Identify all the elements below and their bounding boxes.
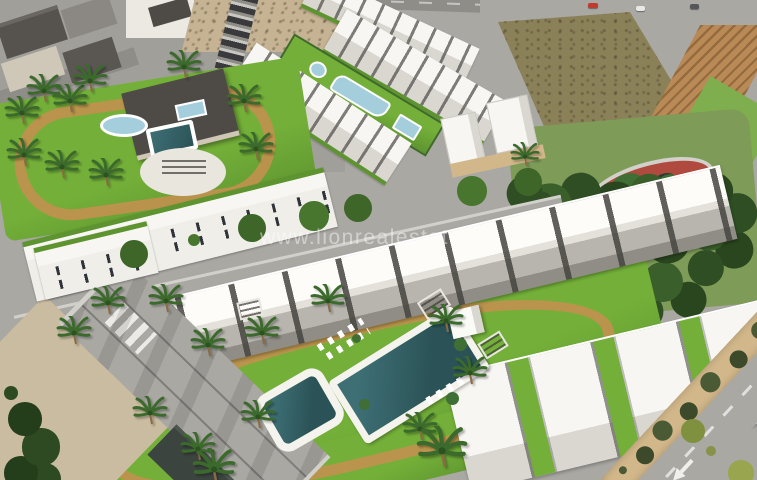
palm-tree [88, 158, 124, 188]
pergola [160, 154, 208, 176]
corner-shrubs [4, 386, 18, 400]
white-car [636, 6, 645, 11]
palm-tree [148, 284, 184, 314]
palm-tree [244, 316, 280, 346]
palm-tree [416, 426, 468, 470]
poolside-plants [352, 334, 361, 343]
palm-tree [90, 286, 126, 316]
palm-tree [166, 50, 202, 80]
palm-tree [72, 64, 108, 94]
palm-tree [310, 284, 346, 314]
aerial-render: www.lionrealestate.es [0, 0, 757, 480]
palm-tree [428, 304, 464, 334]
palm-tree [6, 138, 42, 168]
palm-tree [226, 84, 262, 114]
roadside-trees [706, 446, 716, 456]
palm-tree [190, 328, 226, 358]
palm-tree [192, 448, 236, 480]
dark-car [690, 4, 699, 9]
watermark-text: www.lionrealestate.es [260, 226, 495, 250]
palm-tree [132, 396, 168, 426]
paved-plaza [140, 148, 226, 196]
palm-tree [452, 356, 488, 386]
palm-tree [238, 132, 274, 162]
palm-tree [510, 142, 540, 168]
street-trees [188, 234, 200, 246]
palm-tree [44, 150, 80, 180]
town-building [61, 0, 118, 39]
oval-fountain [100, 114, 148, 137]
palm-tree [56, 316, 92, 346]
red-car [588, 3, 598, 8]
palm-tree [240, 400, 276, 430]
